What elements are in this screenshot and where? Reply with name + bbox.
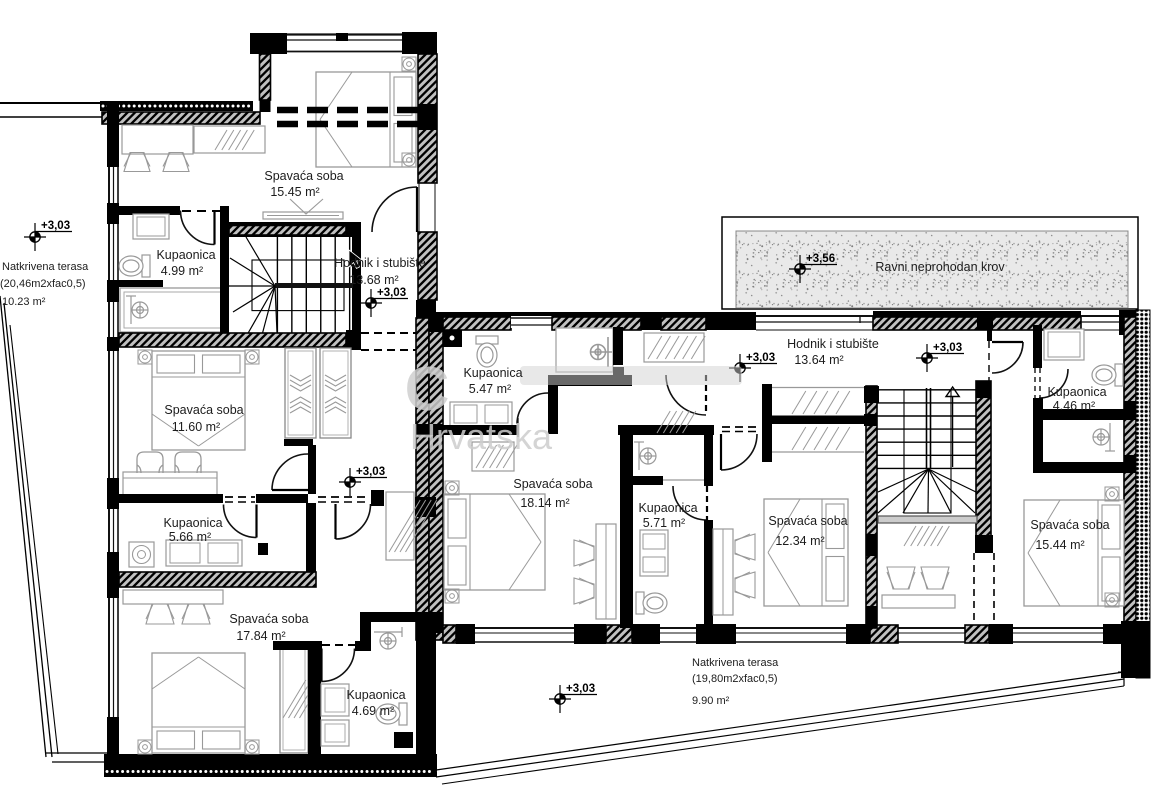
svg-text:Kupaonica: Kupaonica: [463, 366, 522, 380]
svg-text:+3,03: +3,03: [746, 352, 775, 364]
svg-text:15.45 m²: 15.45 m²: [270, 185, 319, 199]
svg-text:Spavaća soba: Spavaća soba: [768, 514, 847, 528]
svg-text:18.14 m²: 18.14 m²: [520, 496, 569, 510]
svg-text:Ravni neprohodan krov: Ravni neprohodan krov: [875, 260, 1005, 274]
svg-text:Kupaonica: Kupaonica: [156, 248, 215, 262]
svg-text:Kupaonica: Kupaonica: [1047, 385, 1106, 399]
svg-text:Natkrivena terasa: Natkrivena terasa: [2, 261, 89, 273]
svg-text:(19,80m2xfac0,5): (19,80m2xfac0,5): [692, 673, 778, 685]
svg-text:(20,46m2xfac0,5): (20,46m2xfac0,5): [0, 278, 86, 290]
svg-text:+3,56: +3,56: [806, 253, 835, 265]
svg-text:+3,03: +3,03: [566, 683, 595, 695]
svg-text:Spavaća soba: Spavaća soba: [513, 477, 592, 491]
svg-text:+3,03: +3,03: [933, 342, 962, 354]
svg-text:5.71 m²: 5.71 m²: [643, 516, 685, 530]
svg-text:Hodnik i stubište: Hodnik i stubište: [787, 337, 879, 351]
svg-text:9.90 m²: 9.90 m²: [692, 695, 730, 707]
svg-text:Spavaća soba: Spavaća soba: [1030, 518, 1109, 532]
svg-text:Spavaća soba: Spavaća soba: [264, 169, 343, 183]
svg-text:10.23 m²: 10.23 m²: [2, 296, 46, 308]
svg-text:13.68 m²: 13.68 m²: [349, 273, 398, 287]
svg-text:13.64 m²: 13.64 m²: [794, 353, 843, 367]
svg-text:Hodnik i stubište: Hodnik i stubište: [334, 256, 426, 270]
svg-text:+3,03: +3,03: [356, 466, 385, 478]
svg-text:+3,03: +3,03: [377, 287, 406, 299]
svg-text:4.99 m²: 4.99 m²: [161, 264, 203, 278]
svg-text:Spavaća soba: Spavaća soba: [229, 612, 308, 626]
svg-text:17.84 m²: 17.84 m²: [236, 629, 285, 643]
svg-text:Kupaonica: Kupaonica: [163, 516, 222, 530]
svg-text:5.66 m²: 5.66 m²: [169, 530, 211, 544]
svg-text:12.34 m²: 12.34 m²: [775, 534, 824, 548]
svg-text:Kupaonica: Kupaonica: [638, 501, 697, 515]
svg-text:+3,03: +3,03: [41, 220, 70, 232]
svg-text:C: C: [405, 355, 450, 424]
svg-text:15.44 m²: 15.44 m²: [1035, 538, 1084, 552]
svg-text:Kupaonica: Kupaonica: [346, 688, 405, 702]
svg-text:4.46 m²: 4.46 m²: [1053, 399, 1095, 413]
svg-text:5.47 m²: 5.47 m²: [469, 382, 511, 396]
svg-text:Spavaća soba: Spavaća soba: [164, 403, 243, 417]
svg-text:11.60 m²: 11.60 m²: [172, 420, 220, 434]
svg-text:Hrvatska: Hrvatska: [410, 416, 553, 457]
svg-text:4.69 m²: 4.69 m²: [352, 704, 394, 718]
svg-text:Natkrivena terasa: Natkrivena terasa: [692, 657, 779, 669]
